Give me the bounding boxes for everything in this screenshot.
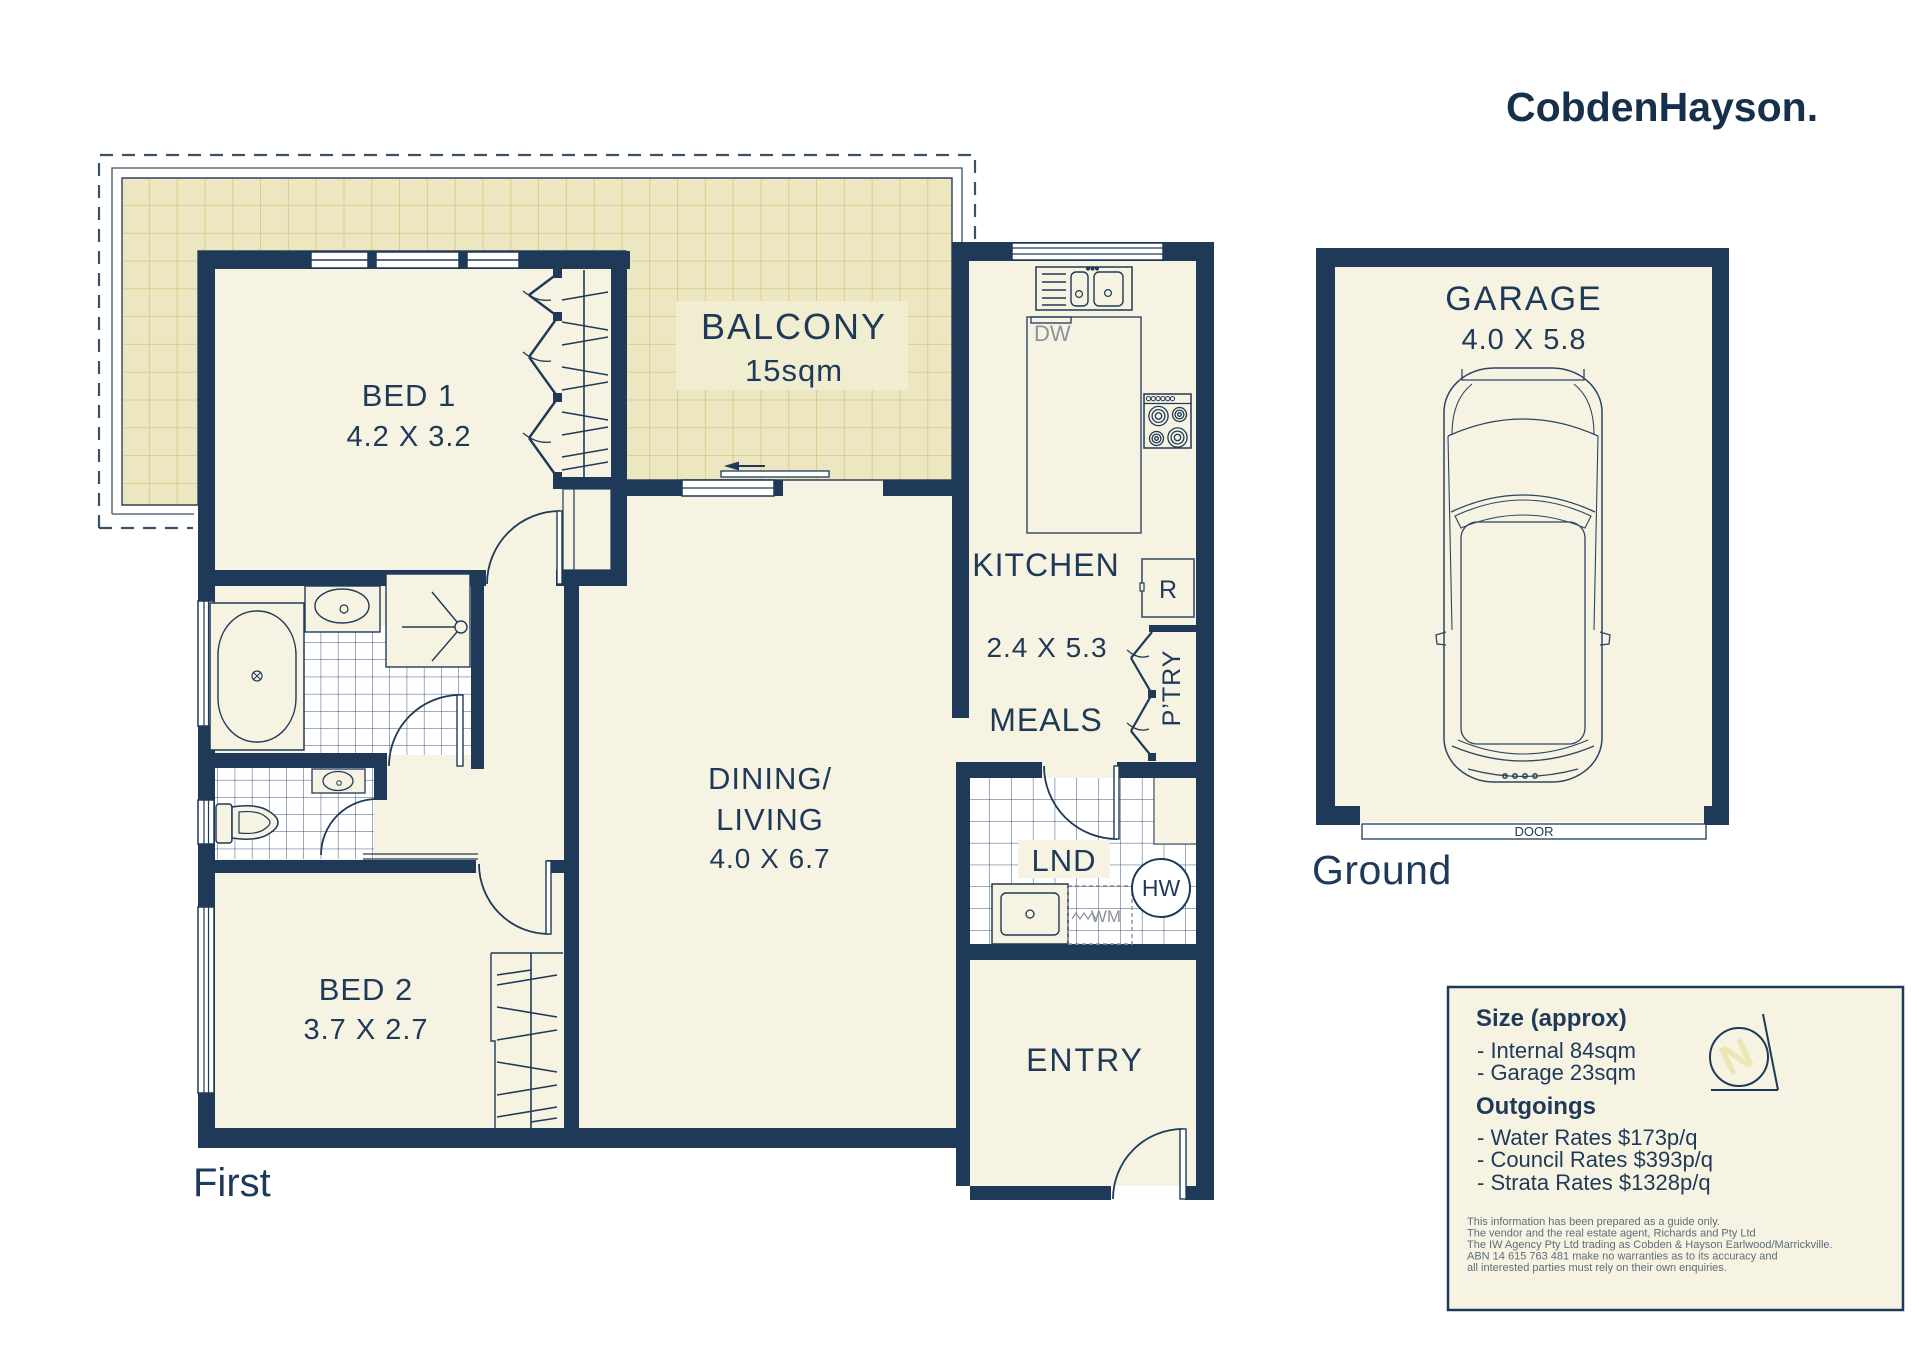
svg-text:MEALS: MEALS bbox=[989, 702, 1102, 738]
svg-text:- Strata Rates $1328p/q: - Strata Rates $1328p/q bbox=[1477, 1170, 1711, 1195]
svg-text:ABN 14 615 763 481 make no war: ABN 14 615 763 481 make no warranties as… bbox=[1467, 1251, 1778, 1263]
svg-text:Size (approx): Size (approx) bbox=[1476, 1005, 1627, 1032]
svg-text:4.2 X 3.2: 4.2 X 3.2 bbox=[346, 421, 471, 453]
svg-text:GARAGE: GARAGE bbox=[1445, 280, 1602, 318]
svg-text:4.0 X 6.7: 4.0 X 6.7 bbox=[709, 843, 830, 874]
svg-text:WM: WM bbox=[1091, 907, 1121, 926]
svg-text:3.7 X 2.7: 3.7 X 2.7 bbox=[303, 1014, 428, 1046]
svg-text:This information has been prep: This information has been prepared as a … bbox=[1467, 1216, 1720, 1228]
svg-text:DINING/: DINING/ bbox=[708, 761, 832, 796]
svg-text:4.0 X 5.8: 4.0 X 5.8 bbox=[1461, 324, 1586, 356]
svg-text:Outgoings: Outgoings bbox=[1476, 1093, 1596, 1120]
svg-text:DW: DW bbox=[1034, 321, 1071, 346]
svg-text:- Garage 23sqm: - Garage 23sqm bbox=[1477, 1060, 1636, 1085]
svg-text:KITCHEN: KITCHEN bbox=[972, 547, 1119, 583]
svg-text:BALCONY: BALCONY bbox=[701, 306, 887, 347]
svg-text:The vendor and the real estate: The vendor and the real estate agent, Ri… bbox=[1467, 1228, 1756, 1240]
svg-text:LND: LND bbox=[1031, 843, 1096, 878]
svg-text:HW: HW bbox=[1142, 875, 1181, 901]
svg-text:P’TRY: P’TRY bbox=[1158, 650, 1186, 727]
svg-text:DOOR: DOOR bbox=[1515, 824, 1554, 839]
svg-text:CobdenHayson.: CobdenHayson. bbox=[1506, 84, 1818, 130]
svg-text:BED 1: BED 1 bbox=[362, 378, 457, 413]
svg-text:all interested parties must re: all interested parties must rely on thei… bbox=[1467, 1262, 1727, 1274]
svg-text:R: R bbox=[1159, 576, 1177, 604]
svg-text:2.4 X 5.3: 2.4 X 5.3 bbox=[986, 632, 1107, 663]
svg-text:15sqm: 15sqm bbox=[745, 353, 843, 388]
svg-text:The IW Agency Pty Ltd trading: The IW Agency Pty Ltd trading as Cobden … bbox=[1467, 1239, 1833, 1251]
svg-text:ENTRY: ENTRY bbox=[1026, 1042, 1144, 1078]
svg-text:- Council Rates $393p/q: - Council Rates $393p/q bbox=[1477, 1147, 1713, 1172]
svg-text:LIVING: LIVING bbox=[716, 802, 824, 837]
svg-text:First: First bbox=[193, 1161, 271, 1205]
svg-text:BED 2: BED 2 bbox=[319, 972, 414, 1007]
svg-text:Ground: Ground bbox=[1312, 847, 1452, 893]
